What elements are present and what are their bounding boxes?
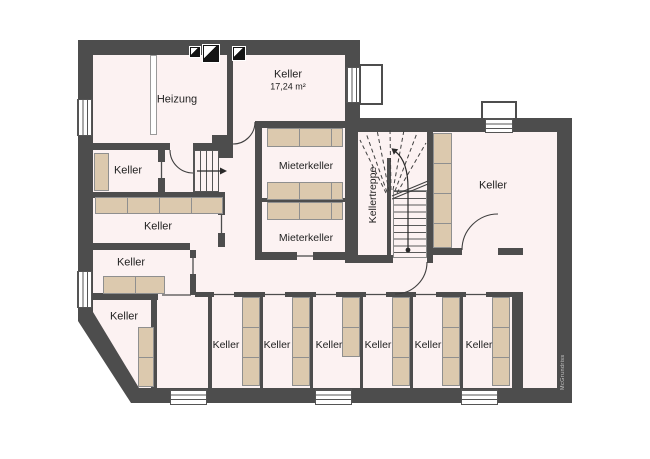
wall-segment (93, 143, 170, 150)
wall-segment (345, 255, 393, 263)
room-label-keller-w4: Keller (110, 311, 138, 324)
storage-shelf (342, 297, 360, 357)
room-label-keller-w3: Keller (117, 257, 145, 270)
wall-segment (190, 250, 196, 258)
wall-segment (433, 248, 462, 255)
window (461, 389, 498, 405)
entry-stairs (193, 150, 219, 192)
wall-segment (512, 292, 523, 388)
wall-segment (255, 252, 297, 260)
storage-shelf (95, 197, 223, 214)
wall-segment (190, 274, 196, 295)
room-label-keller-w2: Keller (144, 221, 172, 234)
wall-segment (262, 121, 345, 128)
wall-segment (310, 297, 313, 388)
basement-stairs (393, 190, 427, 258)
room-label-keller-s2: Keller (264, 339, 291, 351)
room-label-keller-s6: Keller (466, 339, 493, 351)
storage-shelf (94, 153, 109, 191)
wall-segment (360, 297, 363, 388)
room-label-keller-top: Keller 17,24 m² (270, 69, 306, 92)
chimney-icon (190, 47, 200, 57)
storage-shelf (492, 297, 510, 386)
wall-segment (208, 297, 212, 388)
wall-segment (218, 233, 225, 247)
room-label-keller-s5: Keller (415, 339, 442, 351)
wall-segment (345, 132, 358, 263)
storage-shelf (242, 297, 260, 386)
window (170, 389, 207, 405)
window (77, 271, 92, 308)
watermark: McGrundriss (560, 344, 566, 390)
wall-segment (498, 248, 523, 255)
room-label-mieterkeller-a: Mieterkeller (279, 160, 333, 172)
wall-segment (255, 121, 262, 260)
wall-segment (260, 297, 263, 388)
wall-segment (158, 150, 165, 162)
floor-plan: Heizung Keller 17,24 m² Mieterkeller Mie… (0, 0, 650, 459)
storage-shelf (433, 133, 452, 248)
storage-shelf (138, 327, 154, 387)
chimney-icon (233, 47, 245, 60)
room-label-heizung: Heizung (157, 94, 197, 107)
room-label-keller-s3: Keller (316, 339, 343, 351)
room-label-keller-w1: Keller (114, 165, 142, 178)
storage-shelf (103, 276, 165, 294)
light-well (359, 64, 383, 105)
storage-shelf (267, 202, 343, 220)
window (315, 389, 352, 405)
room-label-keller-s1: Keller (213, 339, 240, 351)
room-area: 17,24 m² (270, 81, 306, 91)
room-label-mieterkeller-b: Mieterkeller (279, 232, 333, 244)
wall-segment (410, 297, 413, 388)
chimney-icon (203, 45, 219, 62)
wall-segment (158, 178, 165, 192)
wall-segment (93, 243, 190, 250)
room-label-keller-s4: Keller (365, 339, 392, 351)
wall-segment (460, 297, 463, 388)
wall-segment (227, 55, 233, 143)
storage-shelf (267, 128, 343, 147)
window (77, 99, 92, 136)
window (485, 118, 513, 133)
stair-spine (387, 158, 391, 258)
window (346, 67, 360, 103)
room-label-keller-right: Keller (479, 180, 507, 193)
room-label-kellertreppe: Kellertreppe (367, 167, 379, 224)
storage-shelf (267, 182, 343, 200)
storage-shelf (392, 297, 410, 386)
storage-shelf (292, 297, 310, 386)
storage-shelf (442, 297, 460, 386)
